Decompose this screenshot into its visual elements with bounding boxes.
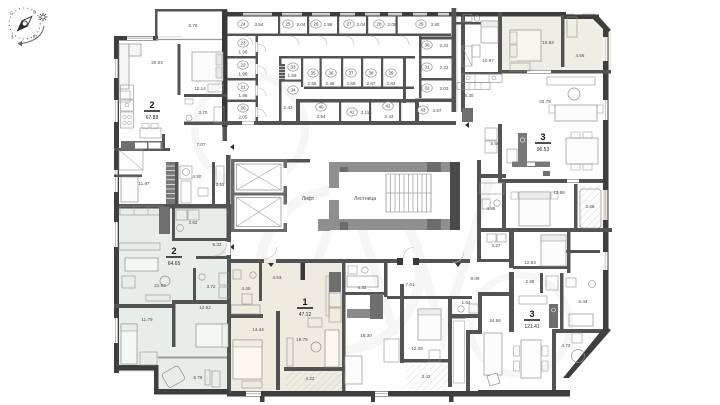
svg-text:21.92: 21.92	[154, 283, 166, 288]
svg-text:1.96: 1.96	[239, 72, 248, 77]
svg-text:23: 23	[241, 41, 246, 46]
svg-text:В: В	[33, 10, 36, 15]
svg-text:5.56: 5.56	[491, 141, 500, 146]
svg-text:35: 35	[311, 71, 316, 76]
svg-text:3.80: 3.80	[431, 22, 440, 27]
svg-text:40: 40	[319, 105, 324, 110]
svg-text:25: 25	[286, 22, 291, 27]
svg-text:26: 26	[314, 22, 319, 27]
svg-text:2.22: 2.22	[440, 43, 449, 48]
svg-text:З: З	[11, 35, 14, 40]
svg-text:4.66: 4.66	[576, 53, 585, 58]
svg-text:38: 38	[369, 71, 374, 76]
svg-text:3.54: 3.54	[317, 114, 326, 119]
svg-text:2.88: 2.88	[526, 279, 535, 284]
svg-text:36: 36	[329, 71, 334, 76]
svg-text:1.96: 1.96	[239, 93, 248, 98]
svg-text:11.79: 11.79	[141, 317, 153, 322]
svg-text:12.39: 12.39	[411, 346, 423, 351]
svg-text:2.04: 2.04	[357, 22, 366, 27]
svg-text:1.96: 1.96	[239, 50, 248, 55]
svg-text:21: 21	[241, 85, 246, 90]
svg-text:14.44: 14.44	[252, 327, 264, 332]
svg-text:27: 27	[347, 22, 352, 27]
svg-text:67.88: 67.88	[146, 115, 159, 121]
svg-text:47.12: 47.12	[299, 312, 312, 318]
svg-text:2.08: 2.08	[388, 22, 397, 27]
svg-text:33: 33	[291, 65, 296, 70]
svg-text:3.54: 3.54	[255, 22, 264, 27]
svg-text:10.87: 10.87	[482, 58, 494, 63]
svg-text:64.65: 64.65	[168, 261, 181, 267]
svg-text:7.61: 7.61	[406, 282, 415, 287]
svg-text:2.11: 2.11	[361, 110, 370, 115]
svg-text:2.04: 2.04	[297, 22, 306, 27]
svg-text:43: 43	[421, 108, 426, 113]
svg-text:Лестница: Лестница	[354, 196, 376, 202]
svg-text:121.41: 121.41	[524, 324, 540, 330]
svg-text:4.50: 4.50	[193, 174, 202, 179]
svg-text:2.43: 2.43	[284, 105, 293, 110]
svg-text:4.40: 4.40	[242, 286, 251, 291]
svg-text:37: 37	[349, 71, 354, 76]
svg-text:1.59: 1.59	[288, 73, 297, 78]
svg-text:12.14: 12.14	[194, 86, 206, 91]
svg-text:9.09: 9.09	[471, 276, 480, 281]
svg-text:30: 30	[425, 43, 430, 48]
svg-text:33.79: 33.79	[539, 99, 551, 104]
svg-text:5.32: 5.32	[213, 242, 222, 247]
svg-text:3.62: 3.62	[189, 220, 198, 225]
svg-text:12.52: 12.52	[199, 305, 211, 310]
svg-text:7.07: 7.07	[197, 142, 206, 147]
svg-text:42: 42	[386, 104, 391, 109]
svg-text:2.22: 2.22	[440, 65, 449, 70]
svg-text:29: 29	[419, 22, 424, 27]
svg-text:С: С	[10, 11, 13, 16]
svg-text:4.72: 4.72	[562, 343, 571, 348]
svg-text:4.32: 4.32	[358, 285, 367, 290]
svg-text:3.68: 3.68	[586, 204, 595, 209]
svg-text:41: 41	[350, 110, 355, 115]
svg-text:39: 39	[389, 71, 394, 76]
svg-text:34: 34	[291, 88, 296, 93]
svg-text:Лифт: Лифт	[302, 196, 315, 202]
svg-text:3.27: 3.27	[492, 243, 501, 248]
svg-text:3.42: 3.42	[422, 374, 431, 379]
svg-text:1: 1	[302, 297, 307, 307]
svg-text:8.30: 8.30	[465, 93, 474, 98]
svg-text:12.84: 12.84	[524, 260, 536, 265]
svg-text:2: 2	[149, 100, 154, 110]
svg-text:96.53: 96.53	[537, 147, 550, 153]
svg-text:4.22: 4.22	[306, 376, 315, 381]
svg-text:32: 32	[425, 86, 430, 91]
svg-text:2.43: 2.43	[385, 114, 394, 119]
svg-text:28: 28	[377, 22, 382, 27]
svg-text:11.97: 11.97	[138, 181, 150, 186]
svg-text:3.70: 3.70	[199, 110, 208, 115]
svg-text:5.76: 5.76	[194, 375, 203, 380]
svg-text:20: 20	[241, 106, 246, 111]
svg-text:2.59: 2.59	[347, 81, 356, 86]
svg-text:5.76: 5.76	[189, 23, 198, 28]
svg-text:4.98: 4.98	[487, 206, 496, 211]
svg-text:3: 3	[529, 309, 534, 319]
svg-text:19.75: 19.75	[296, 337, 308, 342]
svg-text:4.53: 4.53	[273, 275, 282, 280]
svg-text:1.64: 1.64	[462, 300, 471, 305]
svg-text:22: 22	[241, 63, 246, 68]
svg-text:2.46: 2.46	[326, 81, 335, 86]
svg-text:13.86: 13.86	[553, 190, 565, 195]
svg-text:20.63: 20.63	[151, 60, 163, 65]
svg-text:3: 3	[540, 132, 545, 142]
svg-text:2.82: 2.82	[387, 81, 396, 86]
svg-text:10.83: 10.83	[542, 40, 554, 45]
svg-text:24: 24	[241, 22, 246, 27]
svg-text:2.03: 2.03	[440, 86, 449, 91]
svg-text:1.98: 1.98	[324, 22, 333, 27]
svg-text:6.44: 6.44	[579, 299, 588, 304]
svg-text:4.57: 4.57	[433, 108, 442, 113]
svg-text:18.30: 18.30	[360, 333, 372, 338]
svg-text:2.11: 2.11	[216, 182, 225, 187]
svg-text:2.05: 2.05	[239, 115, 248, 120]
svg-text:2.55: 2.55	[308, 81, 317, 86]
svg-text:2.67: 2.67	[367, 81, 376, 86]
svg-text:3.72: 3.72	[207, 284, 216, 289]
svg-text:34.56: 34.56	[489, 318, 501, 323]
svg-text:2: 2	[171, 246, 176, 256]
svg-text:31: 31	[425, 65, 430, 70]
